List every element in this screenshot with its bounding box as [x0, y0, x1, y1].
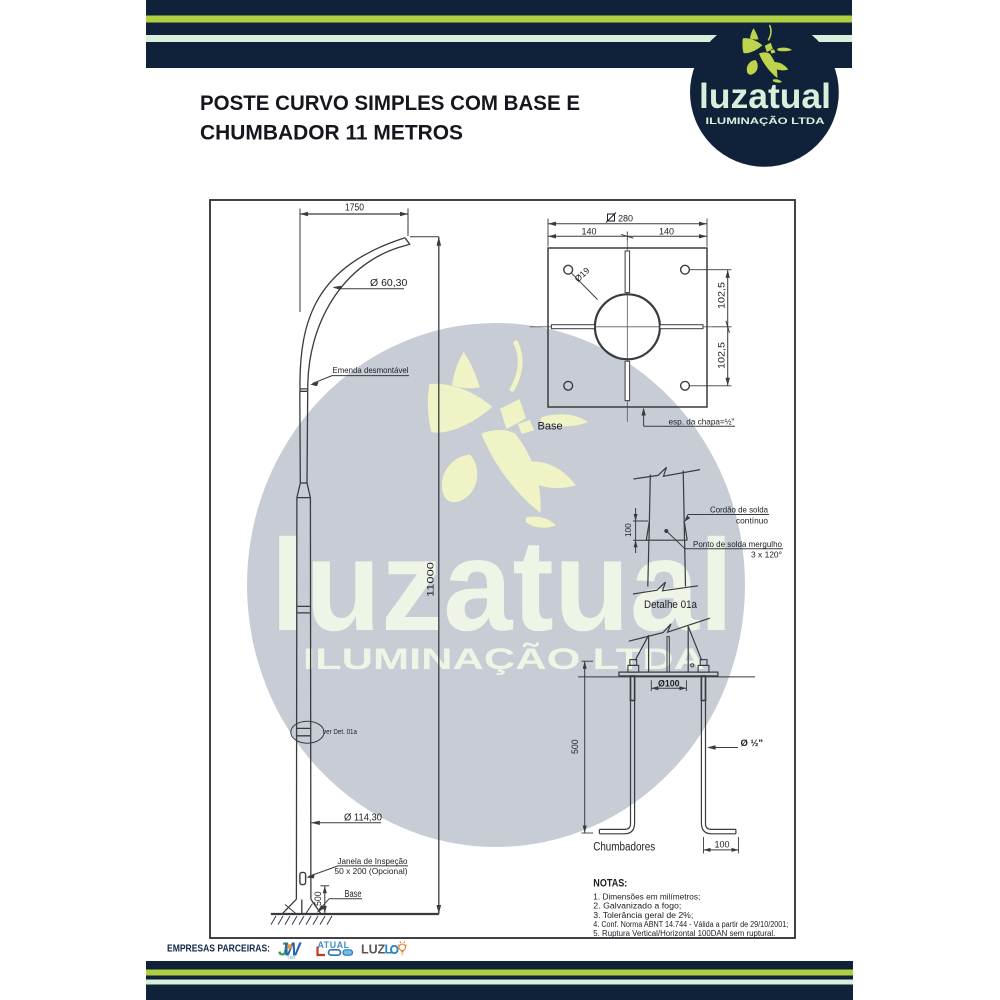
svg-text:LED: LED	[288, 955, 296, 960]
svg-text:Ø100: Ø100	[658, 679, 680, 689]
svg-text:500: 500	[313, 891, 323, 906]
svg-text:ver Det. 01a: ver Det. 01a	[323, 727, 358, 736]
svg-text:Base: Base	[345, 889, 362, 900]
svg-text:500: 500	[570, 739, 580, 754]
svg-text:ILUMINAÇÃO LTDA: ILUMINAÇÃO LTDA	[706, 116, 825, 127]
svg-text:Ø 114,30: Ø 114,30	[344, 811, 382, 823]
svg-text:100: 100	[715, 839, 730, 849]
svg-text:POSTE CURVO SIMPLES COM BASE E: POSTE CURVO SIMPLES COM BASE E	[200, 91, 580, 115]
svg-text:Janela de Inspeção: Janela de Inspeção	[338, 856, 408, 866]
svg-text:Ø 60,30: Ø 60,30	[370, 277, 408, 289]
svg-text:Detalhe 01a: Detalhe 01a	[644, 599, 698, 611]
svg-text:2. Galvanizado a fogo;: 2. Galvanizado a fogo;	[593, 902, 681, 911]
svg-text:Chumbadores: Chumbadores	[593, 842, 655, 854]
svg-text:CHUMBADOR 11 METROS: CHUMBADOR 11 METROS	[200, 121, 463, 145]
svg-text:140: 140	[582, 227, 597, 237]
svg-text:3 x 120°: 3 x 120°	[751, 550, 782, 560]
svg-text:luzatual: luzatual	[699, 77, 831, 116]
svg-text:esp. da chapa=½": esp. da chapa=½"	[669, 418, 735, 427]
svg-text:5. Ruptura Vertical/Horizontal: 5. Ruptura Vertical/Horizontal 100DAN se…	[593, 929, 775, 938]
svg-text:3. Tolerância geral de 2%;: 3. Tolerância geral de 2%;	[593, 911, 693, 920]
svg-text:Emenda desmontável: Emenda desmontável	[333, 365, 409, 375]
svg-text:contínuo: contínuo	[736, 516, 768, 526]
svg-text:1. Dimensões em milímetros;: 1. Dimensões em milímetros;	[593, 893, 700, 902]
svg-text:140: 140	[659, 227, 674, 237]
svg-text:EMPRESAS PARCEIRAS:: EMPRESAS PARCEIRAS:	[167, 943, 270, 955]
svg-text:Ponto de solda mergulho: Ponto de solda mergulho	[693, 539, 782, 549]
svg-text:102,5: 102,5	[717, 342, 727, 369]
svg-text:Base: Base	[538, 421, 563, 433]
svg-text:100: 100	[624, 523, 633, 537]
svg-text:ATUAL: ATUAL	[318, 940, 350, 950]
svg-text:102,5: 102,5	[717, 282, 727, 309]
svg-text:ILUMINAÇÃO LTDA: ILUMINAÇÃO LTDA	[303, 642, 705, 676]
svg-text:NOTAS:: NOTAS:	[593, 878, 627, 890]
svg-text:Cordão de solda: Cordão de solda	[710, 505, 768, 515]
svg-text:LUZ: LUZ	[361, 943, 386, 957]
svg-text:4. Conf. Norma ABNT 14.744 - V: 4. Conf. Norma ABNT 14.744 - Válida a pa…	[593, 920, 788, 929]
svg-text:50 x 200 (Opcional): 50 x 200 (Opcional)	[335, 866, 408, 876]
svg-text:Ø ½": Ø ½"	[741, 738, 763, 749]
svg-text:1750: 1750	[345, 202, 364, 214]
svg-text:280: 280	[618, 214, 633, 224]
svg-text:11000: 11000	[426, 562, 437, 597]
